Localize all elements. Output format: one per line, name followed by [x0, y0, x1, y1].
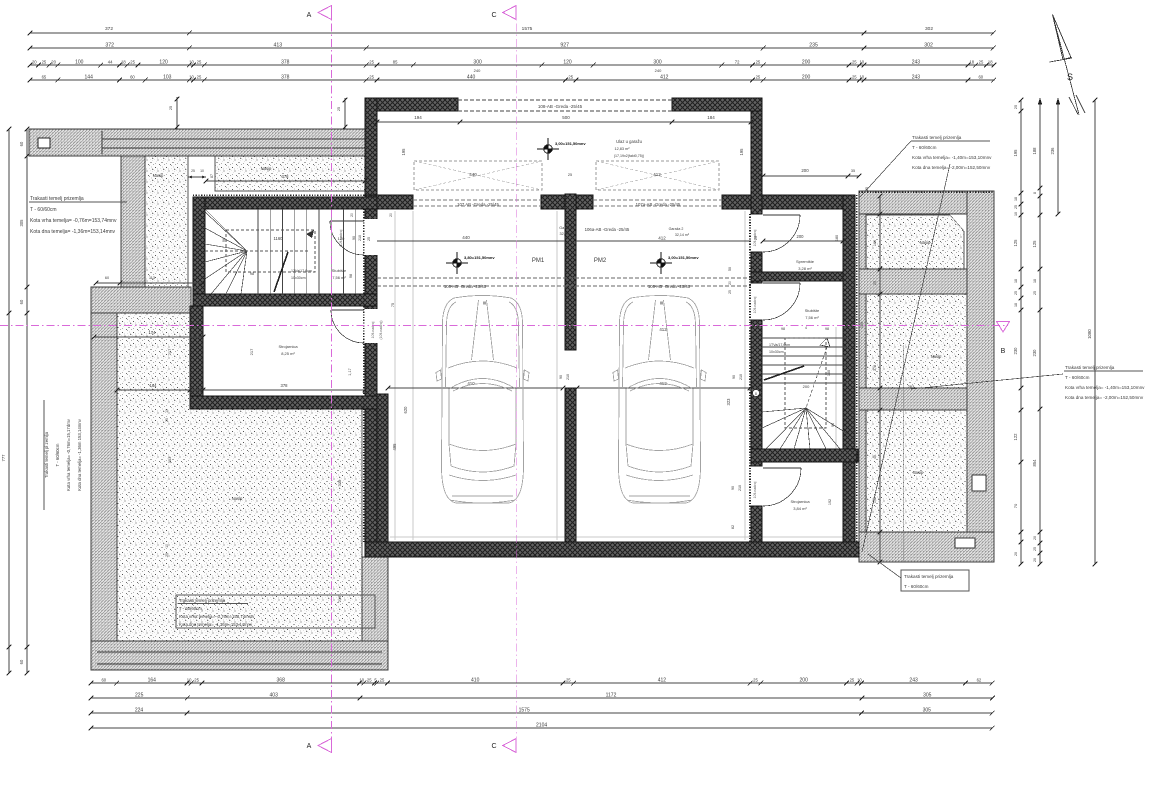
svg-text:8,25 m²: 8,25 m² [281, 351, 295, 356]
svg-text:10: 10 [165, 544, 169, 548]
svg-text:412: 412 [660, 74, 669, 80]
svg-text:25: 25 [367, 237, 371, 241]
svg-text:7,56 m²: 7,56 m² [332, 275, 346, 280]
svg-text:188: 188 [1032, 147, 1037, 155]
svg-text:378: 378 [282, 174, 290, 179]
svg-text:25: 25 [1013, 104, 1018, 109]
svg-text:338: 338 [337, 479, 342, 486]
svg-text:Kota dna temelja= -1,36m=153,1: Kota dna temelja= -1,36m=153,14mnv [179, 622, 253, 627]
svg-text:12,83 m²: 12,83 m² [615, 147, 631, 151]
svg-text:1080: 1080 [1087, 329, 1092, 339]
svg-text:210: 210 [358, 235, 362, 241]
svg-text:60: 60 [19, 299, 24, 304]
svg-text:378: 378 [281, 59, 290, 65]
svg-text:106-AB -Greda -25/45: 106-AB -Greda -25/45 [648, 284, 691, 289]
svg-text:25: 25 [197, 74, 202, 79]
svg-text:T - 60/60cm,: T - 60/60cm, [179, 606, 203, 611]
svg-text:125: 125 [1032, 240, 1037, 248]
svg-text:25: 25 [367, 677, 372, 682]
svg-text:18: 18 [1014, 303, 1018, 307]
svg-text:412: 412 [658, 677, 667, 683]
svg-text:Strojarnica: Strojarnica [278, 344, 298, 349]
svg-text:200: 200 [802, 59, 811, 65]
svg-text:98: 98 [250, 272, 254, 276]
svg-text:378: 378 [281, 383, 289, 388]
svg-text:107a-AB -Greda -25/45: 107a-AB -Greda -25/45 [636, 202, 681, 207]
svg-text:412: 412 [653, 172, 661, 177]
svg-text:1,17: 1,17 [348, 368, 352, 375]
svg-text:25: 25 [728, 290, 732, 294]
svg-text:Kota dna temelja= -2,00m=152,5: Kota dna temelja= -2,00m=152,50mnv [912, 165, 991, 170]
svg-text:372: 372 [105, 26, 113, 32]
svg-text:T - 60/60cm: T - 60/60cm [1065, 375, 1090, 380]
svg-text:10: 10 [859, 74, 864, 79]
svg-text:410: 410 [471, 677, 480, 683]
svg-text:10: 10 [187, 677, 192, 682]
svg-text:25: 25 [852, 59, 857, 64]
svg-text:236: 236 [1050, 147, 1055, 155]
svg-text:4: 4 [805, 326, 807, 330]
svg-text:200: 200 [800, 677, 809, 683]
svg-text:20: 20 [32, 59, 37, 64]
svg-text:174: 174 [149, 330, 157, 335]
svg-text:10: 10 [1014, 212, 1018, 216]
svg-text:Trakasti temelj prizemlja: Trakasti temelj prizemlja [912, 135, 962, 140]
svg-text:305: 305 [923, 707, 932, 713]
svg-text:44: 44 [108, 59, 113, 64]
svg-text:Nasip: Nasip [232, 496, 243, 501]
svg-text:60: 60 [978, 74, 983, 79]
svg-text:195: 195 [739, 148, 744, 156]
svg-text:Ulaz u garažu: Ulaz u garažu [616, 139, 643, 144]
svg-text:412: 412 [659, 327, 667, 332]
svg-text:Trakasti temelj prizemlja: Trakasti temelj prizemlja [1065, 365, 1115, 370]
svg-text:98: 98 [222, 238, 226, 242]
svg-text:253: 253 [908, 384, 915, 389]
svg-text:Trakasti temelj pl zemlja: Trakasti temelj pl zemlja [44, 431, 49, 478]
svg-text:25: 25 [42, 59, 47, 64]
svg-text:108-AB -Greda -25/45: 108-AB -Greda -25/45 [538, 104, 583, 109]
svg-text:25: 25 [369, 74, 374, 79]
svg-text:378: 378 [873, 365, 877, 371]
svg-text:368: 368 [277, 677, 286, 683]
svg-text:144: 144 [85, 74, 94, 80]
svg-text:3,28 m²: 3,28 m² [798, 266, 812, 271]
svg-text:18: 18 [988, 59, 993, 64]
svg-text:(17,19x2(fakt0,75)): (17,19x2(fakt0,75)) [614, 154, 644, 158]
svg-text:25: 25 [852, 74, 857, 79]
svg-text:25: 25 [165, 553, 169, 557]
svg-text:Nasip: Nasip [913, 470, 924, 475]
svg-text:3,80=151,50mnv: 3,80=151,50mnv [464, 255, 495, 260]
svg-text:225: 225 [135, 692, 144, 698]
svg-text:Stubište: Stubište [332, 268, 347, 273]
svg-text:98: 98 [349, 274, 353, 278]
svg-text:Kota dna temelja= -1,36m 153,1: Kota dna temelja= -1,36m 153,14mnv [77, 418, 82, 491]
svg-text:7,56 m²: 7,56 m² [805, 315, 819, 320]
svg-text:Kota dna temelja= -2,00m=152,5: Kota dna temelja= -2,00m=152,50mnv [1065, 395, 1144, 400]
svg-text:20: 20 [350, 213, 354, 217]
svg-text:195: 195 [1013, 149, 1018, 157]
svg-text:60: 60 [101, 677, 106, 682]
svg-text:184: 184 [707, 115, 715, 120]
svg-text:500: 500 [562, 115, 570, 120]
svg-text:305: 305 [19, 219, 24, 227]
svg-text:25: 25 [380, 677, 385, 682]
svg-text:305: 305 [923, 692, 932, 698]
svg-text:(109-nadvoj): (109-nadvoj) [379, 320, 383, 339]
svg-text:25: 25 [1014, 291, 1018, 295]
svg-text:412: 412 [658, 236, 666, 241]
svg-text:PM1: PM1 [532, 258, 545, 264]
svg-text:107 AB -Greda -25/45: 107 AB -Greda -25/45 [457, 202, 499, 207]
svg-text:25: 25 [568, 173, 572, 177]
svg-text:75: 75 [391, 303, 395, 307]
svg-text:10x30cm: 10x30cm [769, 350, 784, 354]
svg-text:160: 160 [873, 240, 877, 246]
svg-text:180: 180 [835, 235, 839, 241]
svg-text:20: 20 [1033, 536, 1037, 540]
svg-text:302: 302 [925, 26, 933, 32]
svg-text:Trakasti temelj prizemlja: Trakasti temelj prizemlja [179, 598, 226, 603]
svg-text:378: 378 [281, 74, 290, 80]
svg-text:8: 8 [1033, 192, 1037, 194]
svg-text:Nasip: Nasip [261, 166, 272, 171]
svg-text:Kota vrha temelja= -0,76m=153,: Kota vrha temelja= -0,76m=153,74mnv [30, 218, 117, 224]
svg-text:70: 70 [1013, 503, 1018, 508]
svg-text:25: 25 [165, 418, 169, 422]
svg-text:Stubište: Stubište [805, 308, 820, 313]
svg-text:3,84 m²: 3,84 m² [793, 506, 807, 511]
svg-text:25: 25 [566, 677, 571, 682]
svg-text:Kota vrha temelja= -1,40m=153,: Kota vrha temelja= -1,40m=153,10mnv [912, 155, 992, 160]
svg-text:Kota vrha temelja= -0,76m=153,: Kota vrha temelja= -0,76m=153,74mstv [179, 614, 255, 619]
svg-text:300: 300 [653, 59, 662, 65]
svg-text:18: 18 [1033, 279, 1037, 283]
svg-text:100: 100 [75, 59, 84, 65]
svg-text:120: 120 [860, 322, 864, 328]
svg-text:194: 194 [414, 115, 422, 120]
svg-text:Garaža 2: Garaža 2 [669, 227, 684, 231]
svg-text:A: A [307, 743, 312, 750]
svg-text:25: 25 [979, 59, 984, 64]
svg-text:440: 440 [469, 172, 477, 177]
svg-text:90: 90 [731, 486, 735, 490]
svg-text:32,44 m²: 32,44 m² [560, 232, 576, 236]
svg-text:1160: 1160 [273, 236, 283, 241]
svg-text:125: 125 [1013, 239, 1018, 247]
svg-text:495: 495 [392, 443, 397, 451]
svg-text:927: 927 [560, 42, 569, 48]
svg-text:T - 60/60cm: T - 60/60cm [912, 145, 937, 150]
svg-text:20: 20 [389, 213, 393, 217]
svg-text:72: 72 [735, 59, 740, 64]
svg-text:25: 25 [194, 677, 199, 682]
svg-text:Kota vrha temelja= -0,76m=15,1: Kota vrha temelja= -0,76m=15,17dmv [66, 418, 71, 491]
svg-text:25: 25 [756, 74, 761, 79]
svg-text:T - 60/60cm: T - 60/60cm [55, 443, 60, 466]
svg-text:230: 230 [1013, 347, 1018, 355]
svg-text:224: 224 [135, 707, 144, 713]
svg-text:109-nadvoj: 109-nadvoj [371, 321, 375, 338]
svg-text:Spremište: Spremište [796, 259, 815, 264]
svg-text:10: 10 [859, 59, 864, 64]
svg-text:25: 25 [873, 281, 877, 285]
svg-text:854: 854 [1032, 459, 1037, 467]
svg-text:120: 120 [159, 59, 168, 65]
svg-text:25: 25 [169, 106, 173, 110]
svg-text:90: 90 [352, 236, 356, 240]
svg-text:87: 87 [210, 174, 214, 178]
svg-text:195: 195 [401, 148, 406, 156]
svg-text:210: 210 [739, 374, 743, 380]
svg-text:25: 25 [756, 59, 761, 64]
svg-text:106-AB -Greda -25/45: 106-AB -Greda -25/45 [444, 284, 487, 289]
svg-text:217: 217 [167, 348, 172, 355]
svg-text:85: 85 [393, 59, 398, 64]
svg-text:S: S [1067, 72, 1073, 82]
svg-text:17Va/17,6cm: 17Va/17,6cm [291, 269, 312, 273]
svg-text:210: 210 [738, 485, 742, 491]
svg-text:109-nadvoj: 109-nadvoj [753, 296, 757, 313]
svg-text:98: 98 [825, 327, 829, 331]
svg-text:440: 440 [462, 235, 470, 240]
svg-text:Trakasti temelj prizemlja: Trakasti temelj prizemlja [30, 196, 84, 202]
svg-text:A: A [307, 12, 312, 19]
svg-text:243: 243 [912, 74, 921, 80]
svg-text:10x30cm: 10x30cm [291, 276, 306, 280]
svg-text:192: 192 [828, 499, 832, 505]
svg-text:18: 18 [1014, 197, 1018, 201]
svg-text:113: 113 [149, 276, 155, 280]
svg-text:Kota dna temelja= -1,36m=153,1: Kota dna temelja= -1,36m=153,14mnv [30, 229, 116, 235]
svg-text:3,00=151,50mnv: 3,00=151,50mnv [555, 141, 586, 146]
svg-text:106a-AB -Greda -25/45: 106a-AB -Greda -25/45 [585, 227, 630, 232]
svg-text:25: 25 [1014, 205, 1018, 209]
svg-text:403: 403 [270, 692, 279, 698]
svg-text:240: 240 [474, 68, 481, 73]
svg-text:240: 240 [655, 68, 662, 73]
svg-text:8: 8 [755, 392, 757, 396]
svg-text:109-nadvoj: 109-nadvoj [753, 481, 757, 498]
svg-text:372: 372 [105, 42, 114, 48]
svg-text:164: 164 [150, 383, 158, 388]
svg-text:160: 160 [827, 370, 831, 376]
svg-text:235: 235 [809, 42, 818, 48]
svg-text:10: 10 [189, 74, 194, 79]
svg-text:25: 25 [568, 74, 573, 79]
svg-text:3,00=151,50mnv: 3,00=151,50mnv [668, 255, 699, 260]
svg-text:60: 60 [130, 74, 135, 79]
svg-text:90: 90 [559, 375, 563, 379]
svg-text:18: 18 [1014, 279, 1018, 283]
svg-text:25: 25 [337, 107, 341, 111]
svg-text:Kota vrha temelja= -1,40m=153,: Kota vrha temelja= -1,40m=153,10mnv [1065, 385, 1145, 390]
svg-text:Trakasti temelj prizemlja: Trakasti temelj prizemlja [904, 574, 954, 579]
svg-text:777: 777 [1, 454, 6, 462]
svg-text:Nasip: Nasip [931, 354, 942, 359]
svg-text:243: 243 [912, 59, 921, 65]
svg-text:440: 440 [467, 74, 476, 80]
svg-text:50: 50 [728, 267, 732, 271]
svg-text:300: 300 [473, 59, 482, 65]
svg-text:18: 18 [969, 59, 974, 64]
svg-text:10: 10 [189, 59, 194, 64]
svg-text:Garaža 1: Garaža 1 [559, 226, 575, 230]
svg-text:62: 62 [977, 677, 982, 682]
svg-text:1575: 1575 [519, 707, 530, 713]
svg-text:25: 25 [191, 169, 195, 173]
svg-text:20: 20 [1033, 558, 1037, 562]
svg-text:200: 200 [797, 234, 805, 239]
svg-text:20: 20 [728, 281, 732, 285]
svg-text:20: 20 [1014, 552, 1018, 556]
svg-text:25: 25 [850, 677, 855, 682]
svg-text:10: 10 [359, 677, 364, 682]
svg-text:60: 60 [105, 276, 109, 280]
svg-text:109-nadvoj: 109-nadvoj [339, 229, 343, 246]
svg-text:200: 200 [801, 168, 809, 173]
svg-text:10: 10 [200, 169, 204, 173]
svg-text:PM2: PM2 [594, 258, 607, 264]
svg-text:122: 122 [1013, 433, 1018, 441]
svg-text:40: 40 [873, 455, 877, 459]
svg-text:90: 90 [732, 375, 736, 379]
svg-text:200: 200 [802, 74, 811, 80]
svg-text:C: C [491, 12, 496, 19]
svg-text:323: 323 [726, 398, 731, 406]
svg-text:C: C [491, 743, 496, 750]
svg-text:25: 25 [1033, 291, 1037, 295]
svg-text:82: 82 [731, 525, 735, 529]
svg-text:302: 302 [924, 42, 933, 48]
svg-text:98: 98 [781, 327, 785, 331]
svg-text:1TVa/17,6cm: 1TVa/17,6cm [769, 343, 790, 347]
svg-text:303: 303 [167, 456, 172, 463]
svg-text:200: 200 [803, 384, 810, 389]
svg-text:98: 98 [831, 423, 835, 427]
svg-text:35: 35 [851, 169, 855, 173]
svg-text:620: 620 [403, 406, 408, 414]
svg-text:60: 60 [19, 141, 24, 146]
svg-text:B: B [1001, 348, 1006, 355]
svg-text:2104: 2104 [536, 722, 547, 728]
svg-text:210: 210 [566, 374, 570, 380]
svg-text:32,14 m²: 32,14 m² [675, 233, 690, 237]
svg-text:10: 10 [165, 409, 169, 413]
svg-text:T - 60/60cm: T - 60/60cm [904, 584, 929, 589]
svg-text:1575: 1575 [522, 26, 533, 32]
svg-text:109-nadvoj: 109-nadvoj [753, 229, 757, 246]
svg-text:Nasip: Nasip [153, 173, 164, 178]
svg-text:1172: 1172 [606, 692, 617, 698]
svg-text:25: 25 [1033, 547, 1037, 551]
svg-text:230: 230 [1032, 349, 1037, 357]
svg-text:243: 243 [909, 677, 918, 683]
svg-text:20: 20 [51, 59, 56, 64]
svg-text:25: 25 [753, 677, 758, 682]
svg-text:25: 25 [197, 59, 202, 64]
svg-text:60: 60 [19, 659, 24, 664]
svg-text:10: 10 [857, 677, 862, 682]
svg-text:25: 25 [130, 59, 135, 64]
svg-text:Nasip: Nasip [920, 240, 931, 245]
svg-text:T - 60/60cm: T - 60/60cm [30, 207, 57, 213]
svg-text:413: 413 [273, 42, 282, 48]
svg-text:120: 120 [563, 59, 572, 65]
svg-text:217: 217 [249, 348, 254, 355]
svg-text:164: 164 [148, 677, 157, 683]
svg-text:25: 25 [369, 59, 374, 64]
svg-text:219: 219 [337, 595, 342, 602]
svg-text:18: 18 [121, 59, 126, 64]
svg-text:65: 65 [42, 74, 47, 79]
svg-text:103: 103 [163, 74, 172, 80]
svg-text:Strojarnica: Strojarnica [790, 499, 810, 504]
